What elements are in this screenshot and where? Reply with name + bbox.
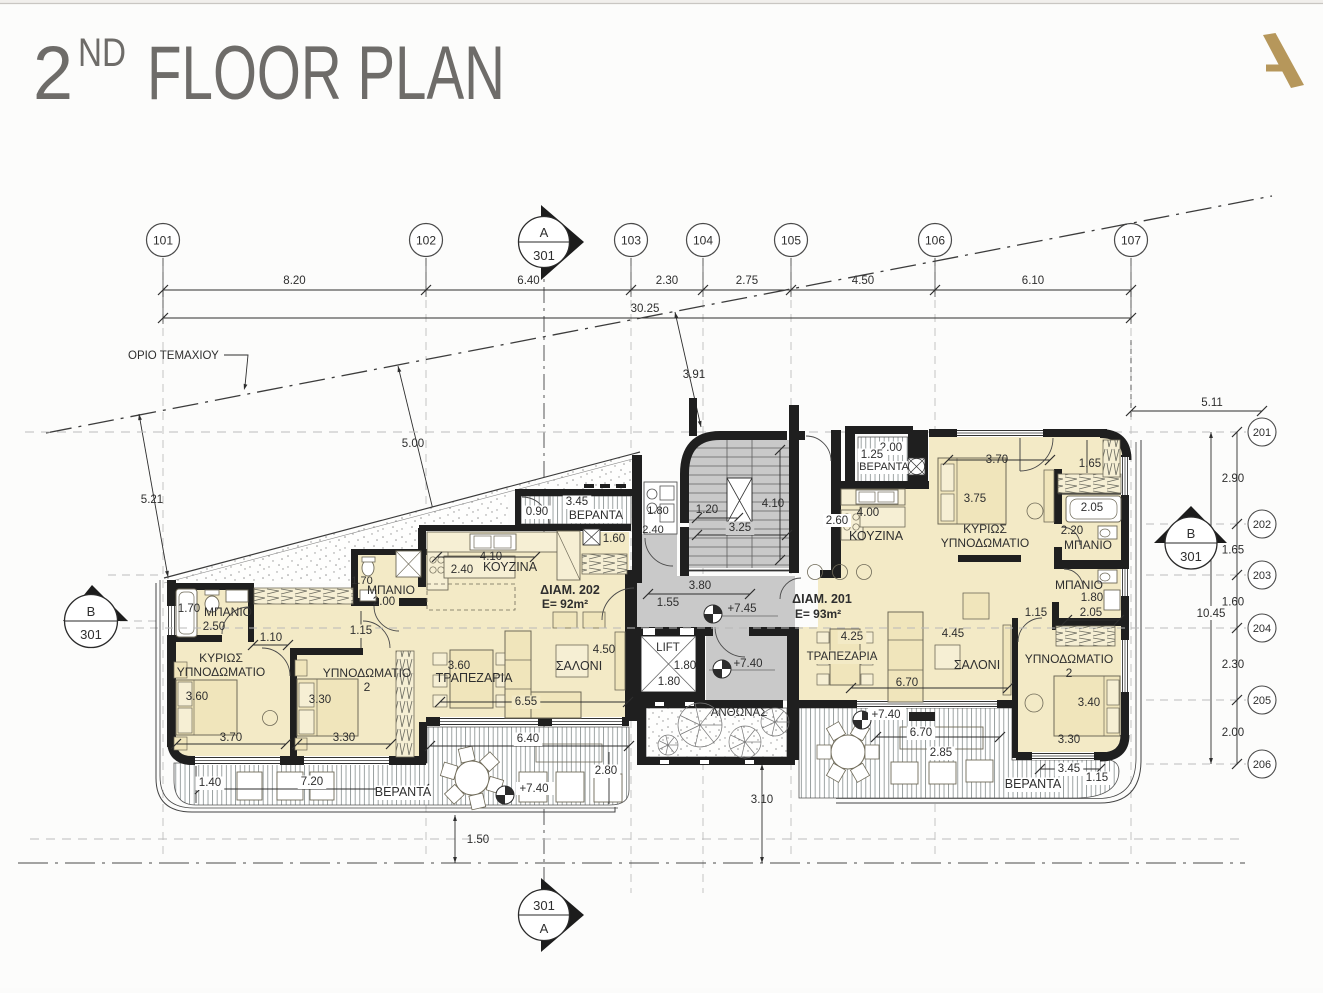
svg-text:1.25: 1.25 [861, 449, 883, 461]
svg-text:ΜΠΑΝΙΟ: ΜΠΑΝΙΟ [204, 605, 252, 619]
svg-text:2.85: 2.85 [930, 747, 952, 759]
svg-text:301: 301 [1180, 549, 1202, 564]
svg-text:ND: ND [78, 31, 126, 75]
svg-text:3.30: 3.30 [1058, 734, 1080, 746]
svg-text:ΜΠΑΝΙΟ: ΜΠΑΝΙΟ [1064, 538, 1112, 552]
svg-text:3.75: 3.75 [964, 493, 986, 505]
svg-text:3.70: 3.70 [986, 454, 1008, 466]
svg-text:ΥΠΝΟΔΩΜΑΤΙΟ: ΥΠΝΟΔΩΜΑΤΙΟ [941, 536, 1030, 550]
svg-text:3.30: 3.30 [333, 732, 355, 744]
svg-text:101: 101 [153, 234, 173, 248]
svg-text:ΑΝΘΩΝΑΣ: ΑΝΘΩΝΑΣ [711, 707, 768, 719]
svg-text:ΥΠΝΟΔΩΜΑΤΙΟ: ΥΠΝΟΔΩΜΑΤΙΟ [323, 666, 412, 680]
svg-text:2.40: 2.40 [451, 564, 473, 576]
svg-text:2: 2 [33, 31, 73, 116]
svg-text:ΜΠΑΝΙΟ: ΜΠΑΝΙΟ [367, 583, 415, 597]
svg-text:ΣΑΛΟΝΙ: ΣΑΛΟΝΙ [556, 659, 602, 673]
svg-text:A: A [540, 225, 549, 240]
svg-text:6.40: 6.40 [517, 275, 539, 287]
svg-text:1.80: 1.80 [647, 505, 668, 517]
svg-text:4.10: 4.10 [480, 551, 502, 563]
svg-text:3.70: 3.70 [220, 732, 242, 744]
svg-text:2.60: 2.60 [826, 515, 848, 527]
svg-text:105: 105 [781, 234, 801, 248]
svg-text:ΥΠΝΟΔΩΜΑΤΙΟ: ΥΠΝΟΔΩΜΑΤΙΟ [1025, 652, 1114, 666]
svg-text:2.30: 2.30 [1222, 659, 1244, 671]
svg-text:5.11: 5.11 [1201, 397, 1223, 409]
svg-text:102: 102 [416, 234, 436, 248]
svg-text:6.10: 6.10 [1022, 275, 1044, 287]
svg-text:6.55: 6.55 [515, 696, 537, 708]
svg-text:1.65: 1.65 [1222, 545, 1244, 557]
svg-text:FLOOR PLAN: FLOOR PLAN [147, 31, 505, 116]
svg-text:2.00: 2.00 [373, 596, 395, 608]
svg-text:5.21: 5.21 [141, 494, 163, 506]
svg-text:ΒΕΡΑΝΤΑ: ΒΕΡΑΝΤΑ [569, 508, 623, 522]
svg-text:2: 2 [364, 680, 371, 694]
svg-text:+7.45: +7.45 [727, 603, 756, 615]
svg-text:2.05: 2.05 [1081, 502, 1103, 514]
svg-text:ΔΙΑΜ. 202: ΔΙΑΜ. 202 [540, 583, 600, 597]
svg-text:1.50: 1.50 [467, 834, 489, 846]
svg-text:205: 205 [1253, 695, 1271, 707]
svg-text:4.50: 4.50 [593, 644, 615, 656]
svg-text:2.50: 2.50 [203, 621, 225, 633]
svg-text:2.40: 2.40 [642, 524, 663, 536]
svg-text:4.00: 4.00 [857, 507, 879, 519]
svg-text:ΣΑΛΟΝΙ: ΣΑΛΟΝΙ [954, 658, 1000, 672]
svg-text:4.10: 4.10 [762, 498, 784, 510]
svg-text:4.45: 4.45 [942, 628, 964, 640]
svg-text:1.55: 1.55 [657, 597, 679, 609]
svg-text:103: 103 [621, 234, 641, 248]
svg-text:ΤΡΑΠΕΖΑΡΙΑ: ΤΡΑΠΕΖΑΡΙΑ [807, 651, 878, 663]
svg-text:ΔΙΑΜ. 201: ΔΙΑΜ. 201 [792, 592, 852, 606]
svg-text:3.30: 3.30 [309, 694, 331, 706]
svg-text:+7.40: +7.40 [519, 783, 548, 795]
svg-text:ΒΕΡΑΝΤΑ: ΒΕΡΑΝΤΑ [1005, 777, 1062, 791]
svg-text:ΚΟΥΖΙΝΑ: ΚΟΥΖΙΝΑ [849, 529, 904, 543]
svg-text:8.20: 8.20 [283, 275, 305, 287]
svg-text:3.60: 3.60 [186, 691, 208, 703]
svg-text:1.80: 1.80 [1081, 592, 1103, 604]
svg-text:3.40: 3.40 [1078, 697, 1100, 709]
svg-text:201: 201 [1253, 427, 1271, 439]
svg-text:2.30: 2.30 [656, 275, 678, 287]
svg-text:202: 202 [1253, 519, 1271, 531]
svg-text:2.90: 2.90 [1222, 473, 1244, 485]
svg-text:2.05: 2.05 [1080, 607, 1102, 619]
svg-text:3.91: 3.91 [683, 369, 705, 381]
svg-text:204: 204 [1253, 623, 1271, 635]
svg-text:B: B [87, 604, 96, 619]
svg-text:2.00: 2.00 [1222, 727, 1244, 739]
svg-text:206: 206 [1253, 759, 1271, 771]
svg-text:3.10: 3.10 [751, 794, 773, 806]
svg-text:2.80: 2.80 [595, 765, 617, 777]
svg-text:1.15: 1.15 [350, 625, 372, 637]
svg-text:1.60: 1.60 [603, 533, 625, 545]
svg-text:ΒΕΡΑΝΤΑ: ΒΕΡΑΝΤΑ [375, 785, 432, 799]
svg-text:E= 92m²: E= 92m² [542, 597, 588, 611]
svg-text:301: 301 [533, 248, 555, 263]
svg-text:0.90: 0.90 [526, 506, 548, 518]
svg-text:ΚΥΡΙΩΣ: ΚΥΡΙΩΣ [199, 651, 243, 665]
svg-text:ΜΠΑΝΙΟ: ΜΠΑΝΙΟ [1055, 578, 1103, 592]
svg-text:6.70: 6.70 [896, 677, 918, 689]
svg-text:1.40: 1.40 [199, 777, 221, 789]
svg-text:3.45: 3.45 [566, 496, 588, 508]
svg-text:203: 203 [1253, 570, 1271, 582]
svg-text:LIFT: LIFT [656, 642, 680, 654]
svg-text:6.40: 6.40 [517, 733, 539, 745]
svg-text:3.25: 3.25 [729, 522, 751, 534]
svg-text:E= 93m²: E= 93m² [795, 607, 841, 621]
svg-text:B: B [1187, 526, 1196, 541]
svg-text:1.80: 1.80 [658, 676, 680, 688]
svg-text:ΒΕΡΑΝΤΑ: ΒΕΡΑΝΤΑ [859, 461, 909, 473]
svg-text:ΚΥΡΙΩΣ: ΚΥΡΙΩΣ [963, 522, 1007, 536]
svg-text:+7.40: +7.40 [871, 709, 900, 721]
svg-text:1.20: 1.20 [696, 504, 718, 516]
svg-text:1.15: 1.15 [1025, 607, 1047, 619]
svg-text:10.45: 10.45 [1197, 608, 1226, 620]
svg-text:ΥΠΝΟΔΩΜΑΤΙΟ: ΥΠΝΟΔΩΜΑΤΙΟ [177, 665, 266, 679]
svg-text:6.70: 6.70 [910, 727, 932, 739]
svg-text:4.25: 4.25 [841, 631, 863, 643]
svg-text:+7.40: +7.40 [733, 658, 762, 670]
svg-text:1.15: 1.15 [1086, 772, 1108, 784]
svg-text:5.00: 5.00 [402, 438, 424, 450]
svg-text:A: A [540, 921, 549, 936]
svg-text:106: 106 [925, 234, 945, 248]
svg-text:1.70: 1.70 [178, 603, 200, 615]
svg-text:2: 2 [1066, 666, 1073, 680]
svg-text:3.80: 3.80 [689, 580, 711, 592]
svg-text:107: 107 [1121, 234, 1141, 248]
svg-text:1.70: 1.70 [351, 575, 372, 587]
svg-text:7.20: 7.20 [301, 776, 323, 788]
svg-text:ΟΡΙΟ ΤΕΜΑΧΙΟΥ: ΟΡΙΟ ΤΕΜΑΧΙΟΥ [128, 350, 219, 362]
svg-text:1.80: 1.80 [674, 660, 696, 672]
svg-text:1.10: 1.10 [260, 632, 282, 644]
svg-text:301: 301 [533, 898, 555, 913]
svg-text:2.75: 2.75 [736, 275, 758, 287]
svg-text:2.20: 2.20 [1061, 525, 1083, 537]
svg-text:ΤΡΑΠΕΖΑΡΙΑ: ΤΡΑΠΕΖΑΡΙΑ [436, 671, 514, 685]
svg-text:3.45: 3.45 [1058, 763, 1080, 775]
svg-text:3.60: 3.60 [448, 660, 470, 672]
svg-text:30.25: 30.25 [631, 303, 660, 315]
svg-text:1.65: 1.65 [1079, 458, 1101, 470]
svg-text:301: 301 [80, 627, 102, 642]
svg-text:104: 104 [693, 234, 713, 248]
